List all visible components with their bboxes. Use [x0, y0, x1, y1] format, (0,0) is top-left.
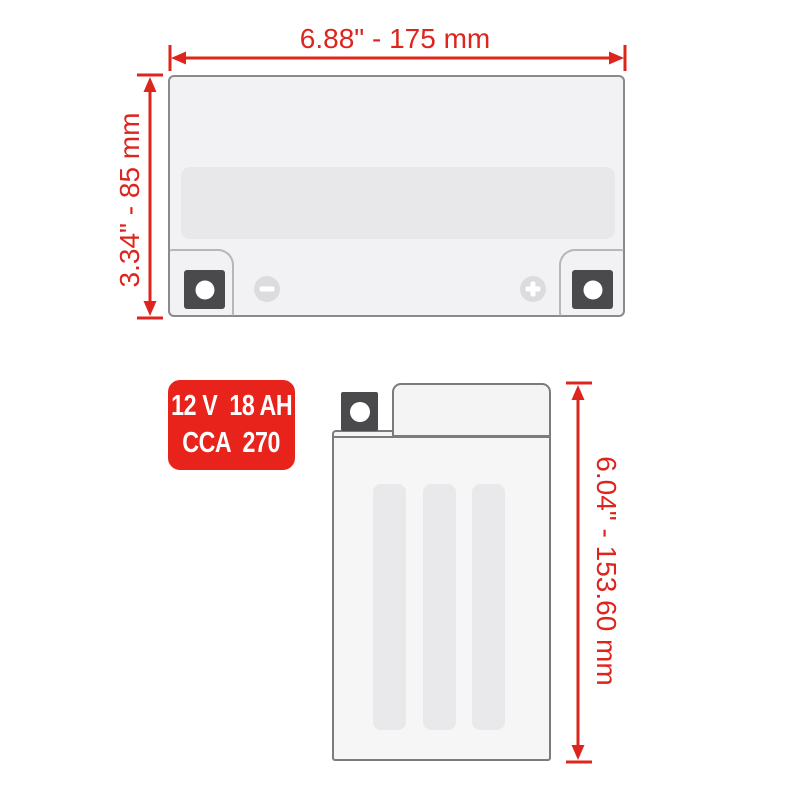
bolt-hole: [195, 280, 214, 299]
battery-front-view: [168, 75, 625, 317]
plus-icon: [520, 276, 546, 302]
side-height-dimension-label: 6.04" - 153.60 mm: [591, 456, 621, 685]
spec-cca: CCA 270: [183, 425, 281, 462]
side-stripe: [373, 484, 406, 730]
side-stripe: [472, 484, 505, 730]
minus-icon: [254, 276, 280, 302]
side-stripe: [423, 484, 456, 730]
spec-badge: 12 V 18 AH CCA 270: [168, 380, 295, 470]
bolt-hole: [350, 402, 370, 422]
spec-voltage-capacity: 12 V 18 AH: [171, 388, 292, 425]
positive-terminal-bolt: [572, 270, 613, 309]
battery-dimension-diagram: 6.88" - 175 mm 3.34" - 85 mm 6.04" - 153…: [0, 0, 800, 800]
side-height-dimension-arrow: [566, 383, 592, 762]
negative-terminal-bolt: [184, 270, 225, 309]
bolt-hole: [583, 280, 602, 299]
front-height-dimension-label: 3.34" - 85 mm: [115, 113, 145, 288]
side-lid: [392, 383, 551, 437]
side-terminal-bolt: [341, 392, 378, 431]
battery-side-view: [332, 383, 551, 761]
side-body: [332, 436, 551, 761]
width-dimension-label: 6.88" - 175 mm: [245, 24, 545, 54]
battery-label-band: [181, 167, 615, 239]
